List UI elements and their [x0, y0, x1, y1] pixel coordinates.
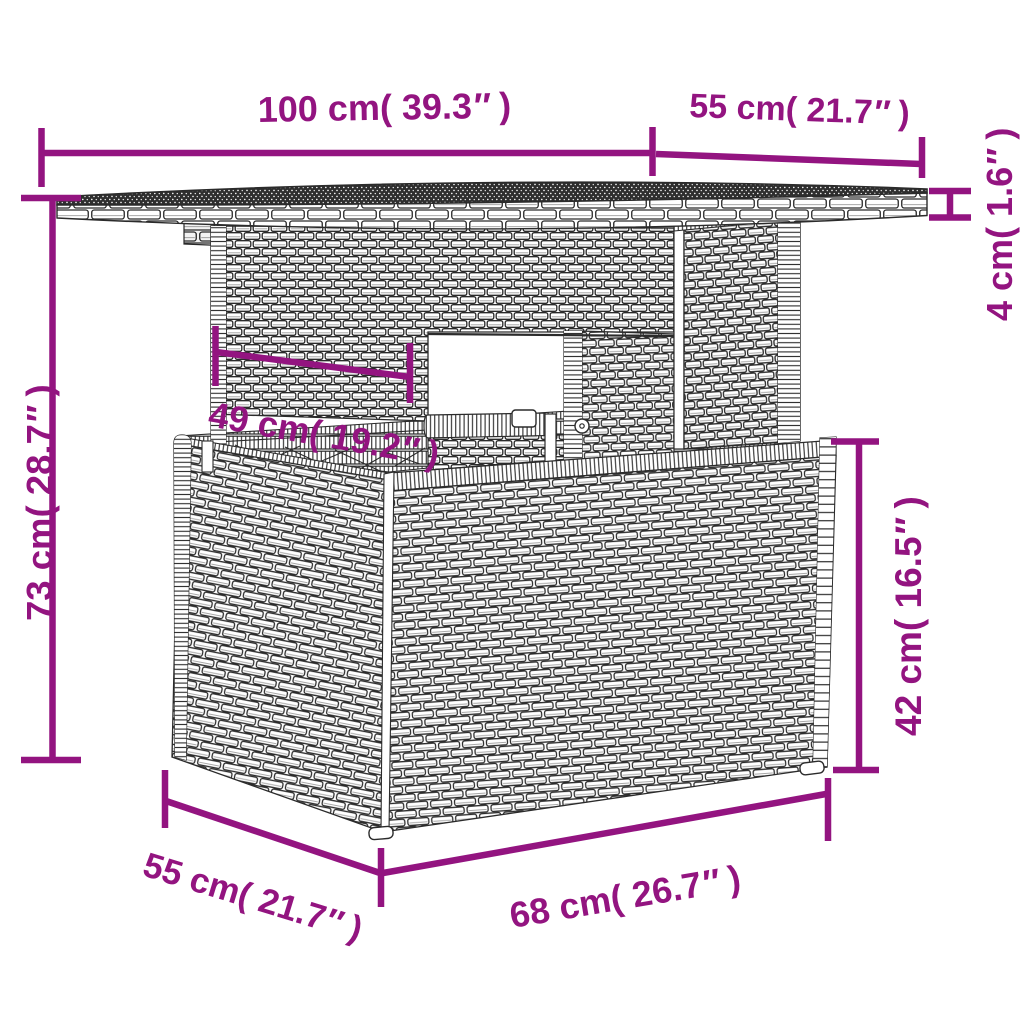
svg-text:73 cm( 28.7″ ): 73 cm( 28.7″ ) — [19, 384, 60, 621]
svg-text:55 cm( 21.7″ ): 55 cm( 21.7″ ) — [689, 87, 911, 133]
svg-text:100 cm( 39.3″ ): 100 cm( 39.3″ ) — [257, 85, 511, 130]
svg-text:4 cm( 1.6″ ): 4 cm( 1.6″ ) — [979, 128, 1020, 321]
svg-text:42 cm( 16.5″ ): 42 cm( 16.5″ ) — [888, 496, 929, 736]
